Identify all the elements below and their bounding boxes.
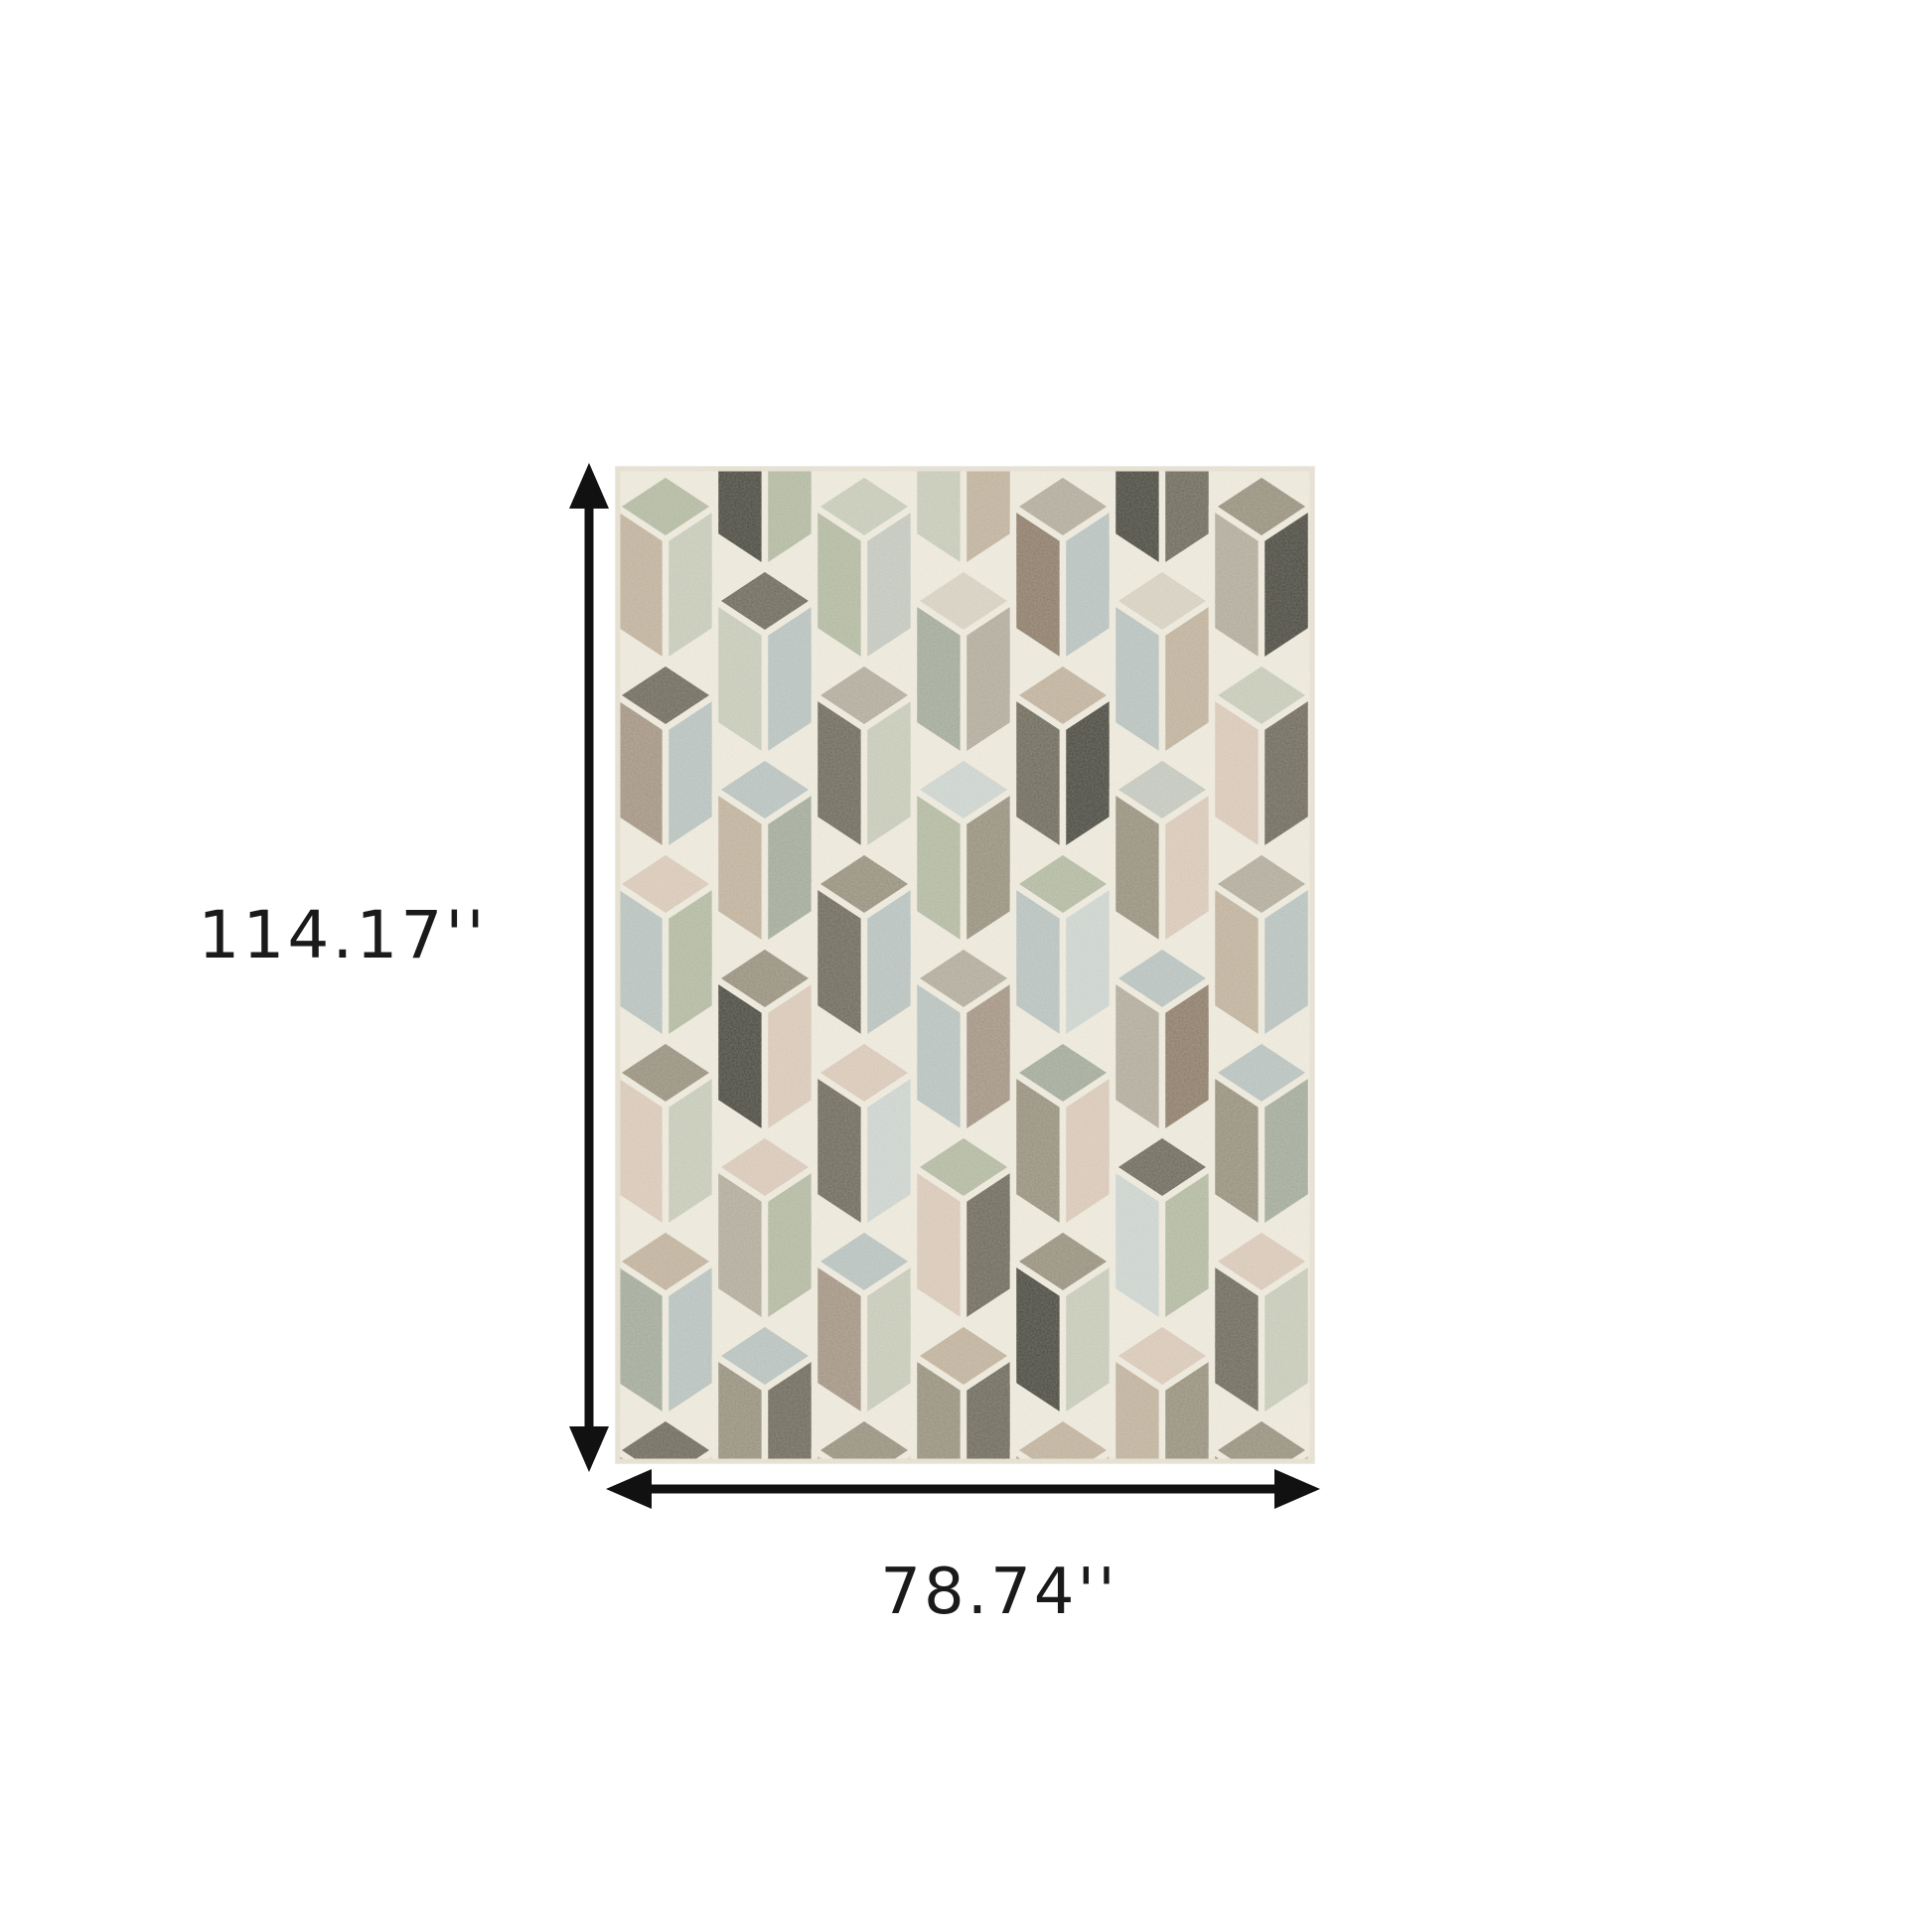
vertical-dimension-arrow-icon	[569, 463, 609, 1472]
height-dimension-label: 114.17''	[169, 897, 517, 973]
rug-image	[616, 467, 1314, 1463]
width-dimension-label: 78.74''	[811, 1556, 1188, 1629]
product-dimension-diagram: 114.17'' 78.74''	[0, 0, 1932, 1932]
horizontal-dimension-arrow-icon	[606, 1469, 1320, 1509]
